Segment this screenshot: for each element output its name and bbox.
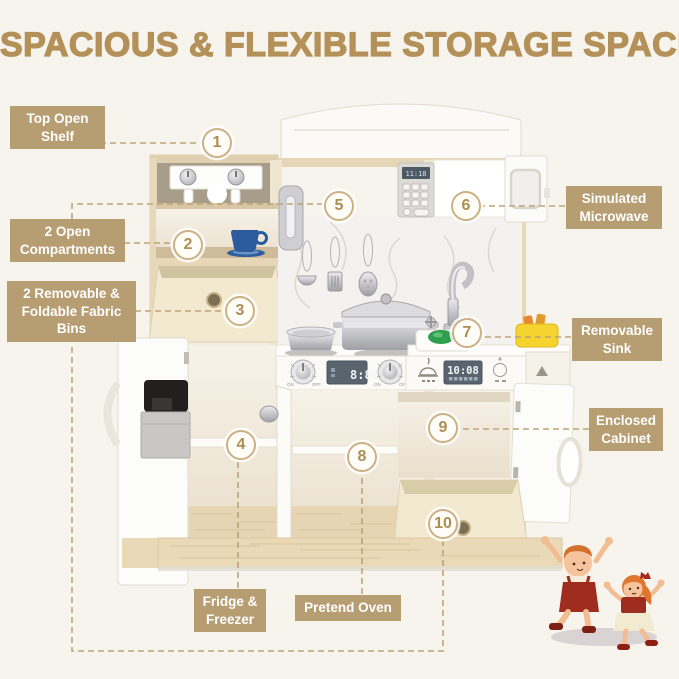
callout-8: 8 bbox=[347, 442, 377, 472]
callout-2: 2 bbox=[173, 230, 203, 260]
callout-1: 1 bbox=[202, 128, 232, 158]
callout-7: 7 bbox=[452, 318, 482, 348]
label-fridge-freezer: Fridge & Freezer bbox=[194, 589, 266, 632]
callout-3: 3 bbox=[225, 296, 255, 326]
product-infographic: ON OFF 8:88 ON OFF 11:18 bbox=[0, 0, 679, 679]
callout-10: 10 bbox=[428, 509, 458, 539]
callout-9: 9 bbox=[428, 413, 458, 443]
label-top-open-shelf: Top Open Shelf bbox=[10, 106, 105, 149]
connector-open-compartments-b bbox=[72, 204, 323, 219]
callout-4: 4 bbox=[226, 430, 256, 460]
callout-5: 5 bbox=[324, 191, 354, 221]
label-pretend-oven: Pretend Oven bbox=[295, 595, 401, 621]
label-enclosed-cabinet: Enclosed Cabinet bbox=[589, 408, 663, 451]
label-removable-sink: Removable Sink bbox=[572, 318, 662, 361]
callout-6: 6 bbox=[451, 191, 481, 221]
label-simulated-microwave: Simulated Microwave bbox=[566, 186, 662, 229]
label-open-compartments: 2 Open Compartments bbox=[10, 219, 125, 262]
label-fabric-bins: 2 Removable & Foldable Fabric Bins bbox=[7, 281, 136, 342]
